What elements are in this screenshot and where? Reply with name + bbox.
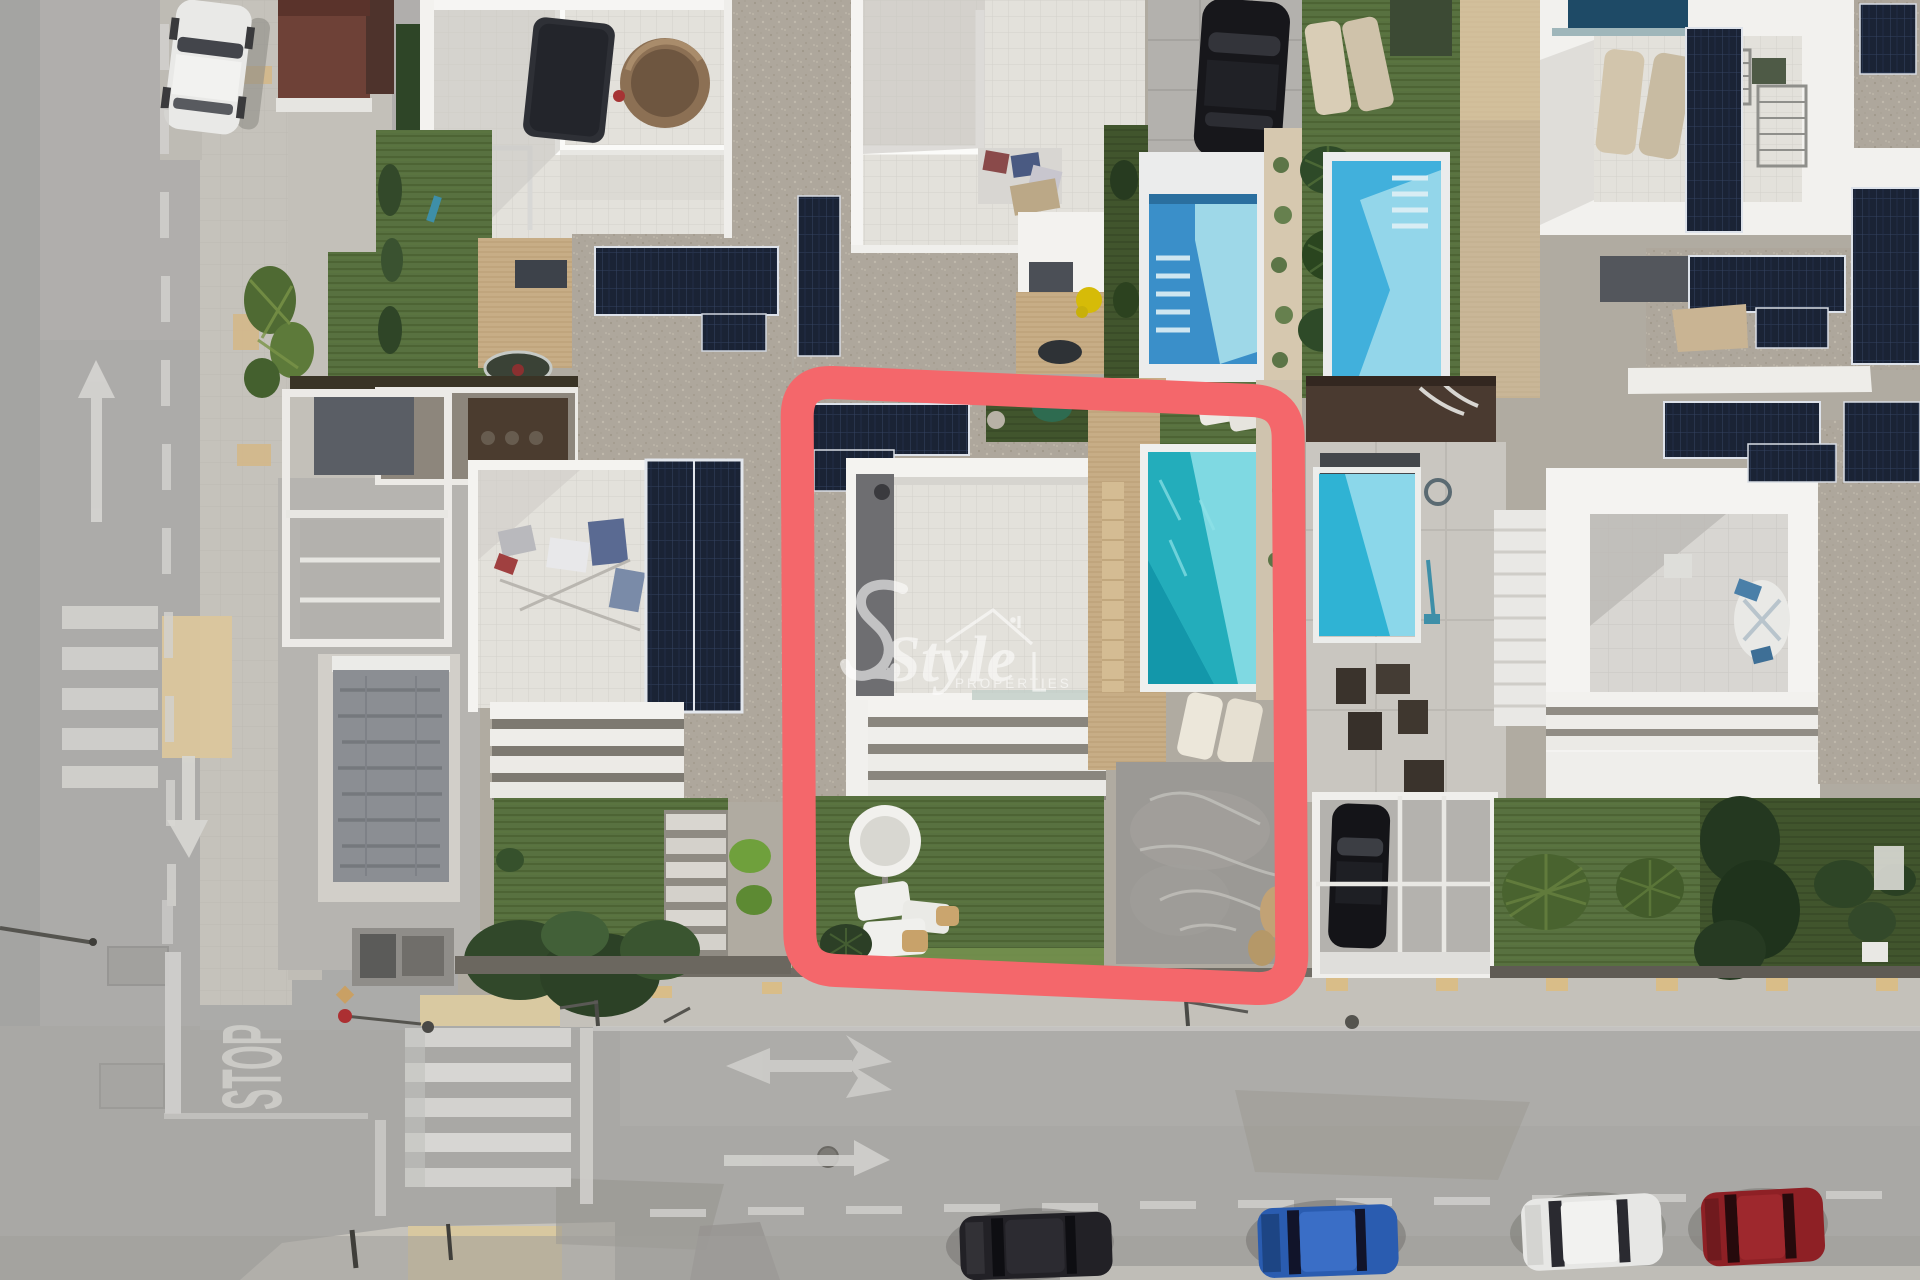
svg-text:STOP: STOP <box>205 1024 299 1110</box>
svg-text:PROPERTIES: PROPERTIES <box>955 676 1072 691</box>
